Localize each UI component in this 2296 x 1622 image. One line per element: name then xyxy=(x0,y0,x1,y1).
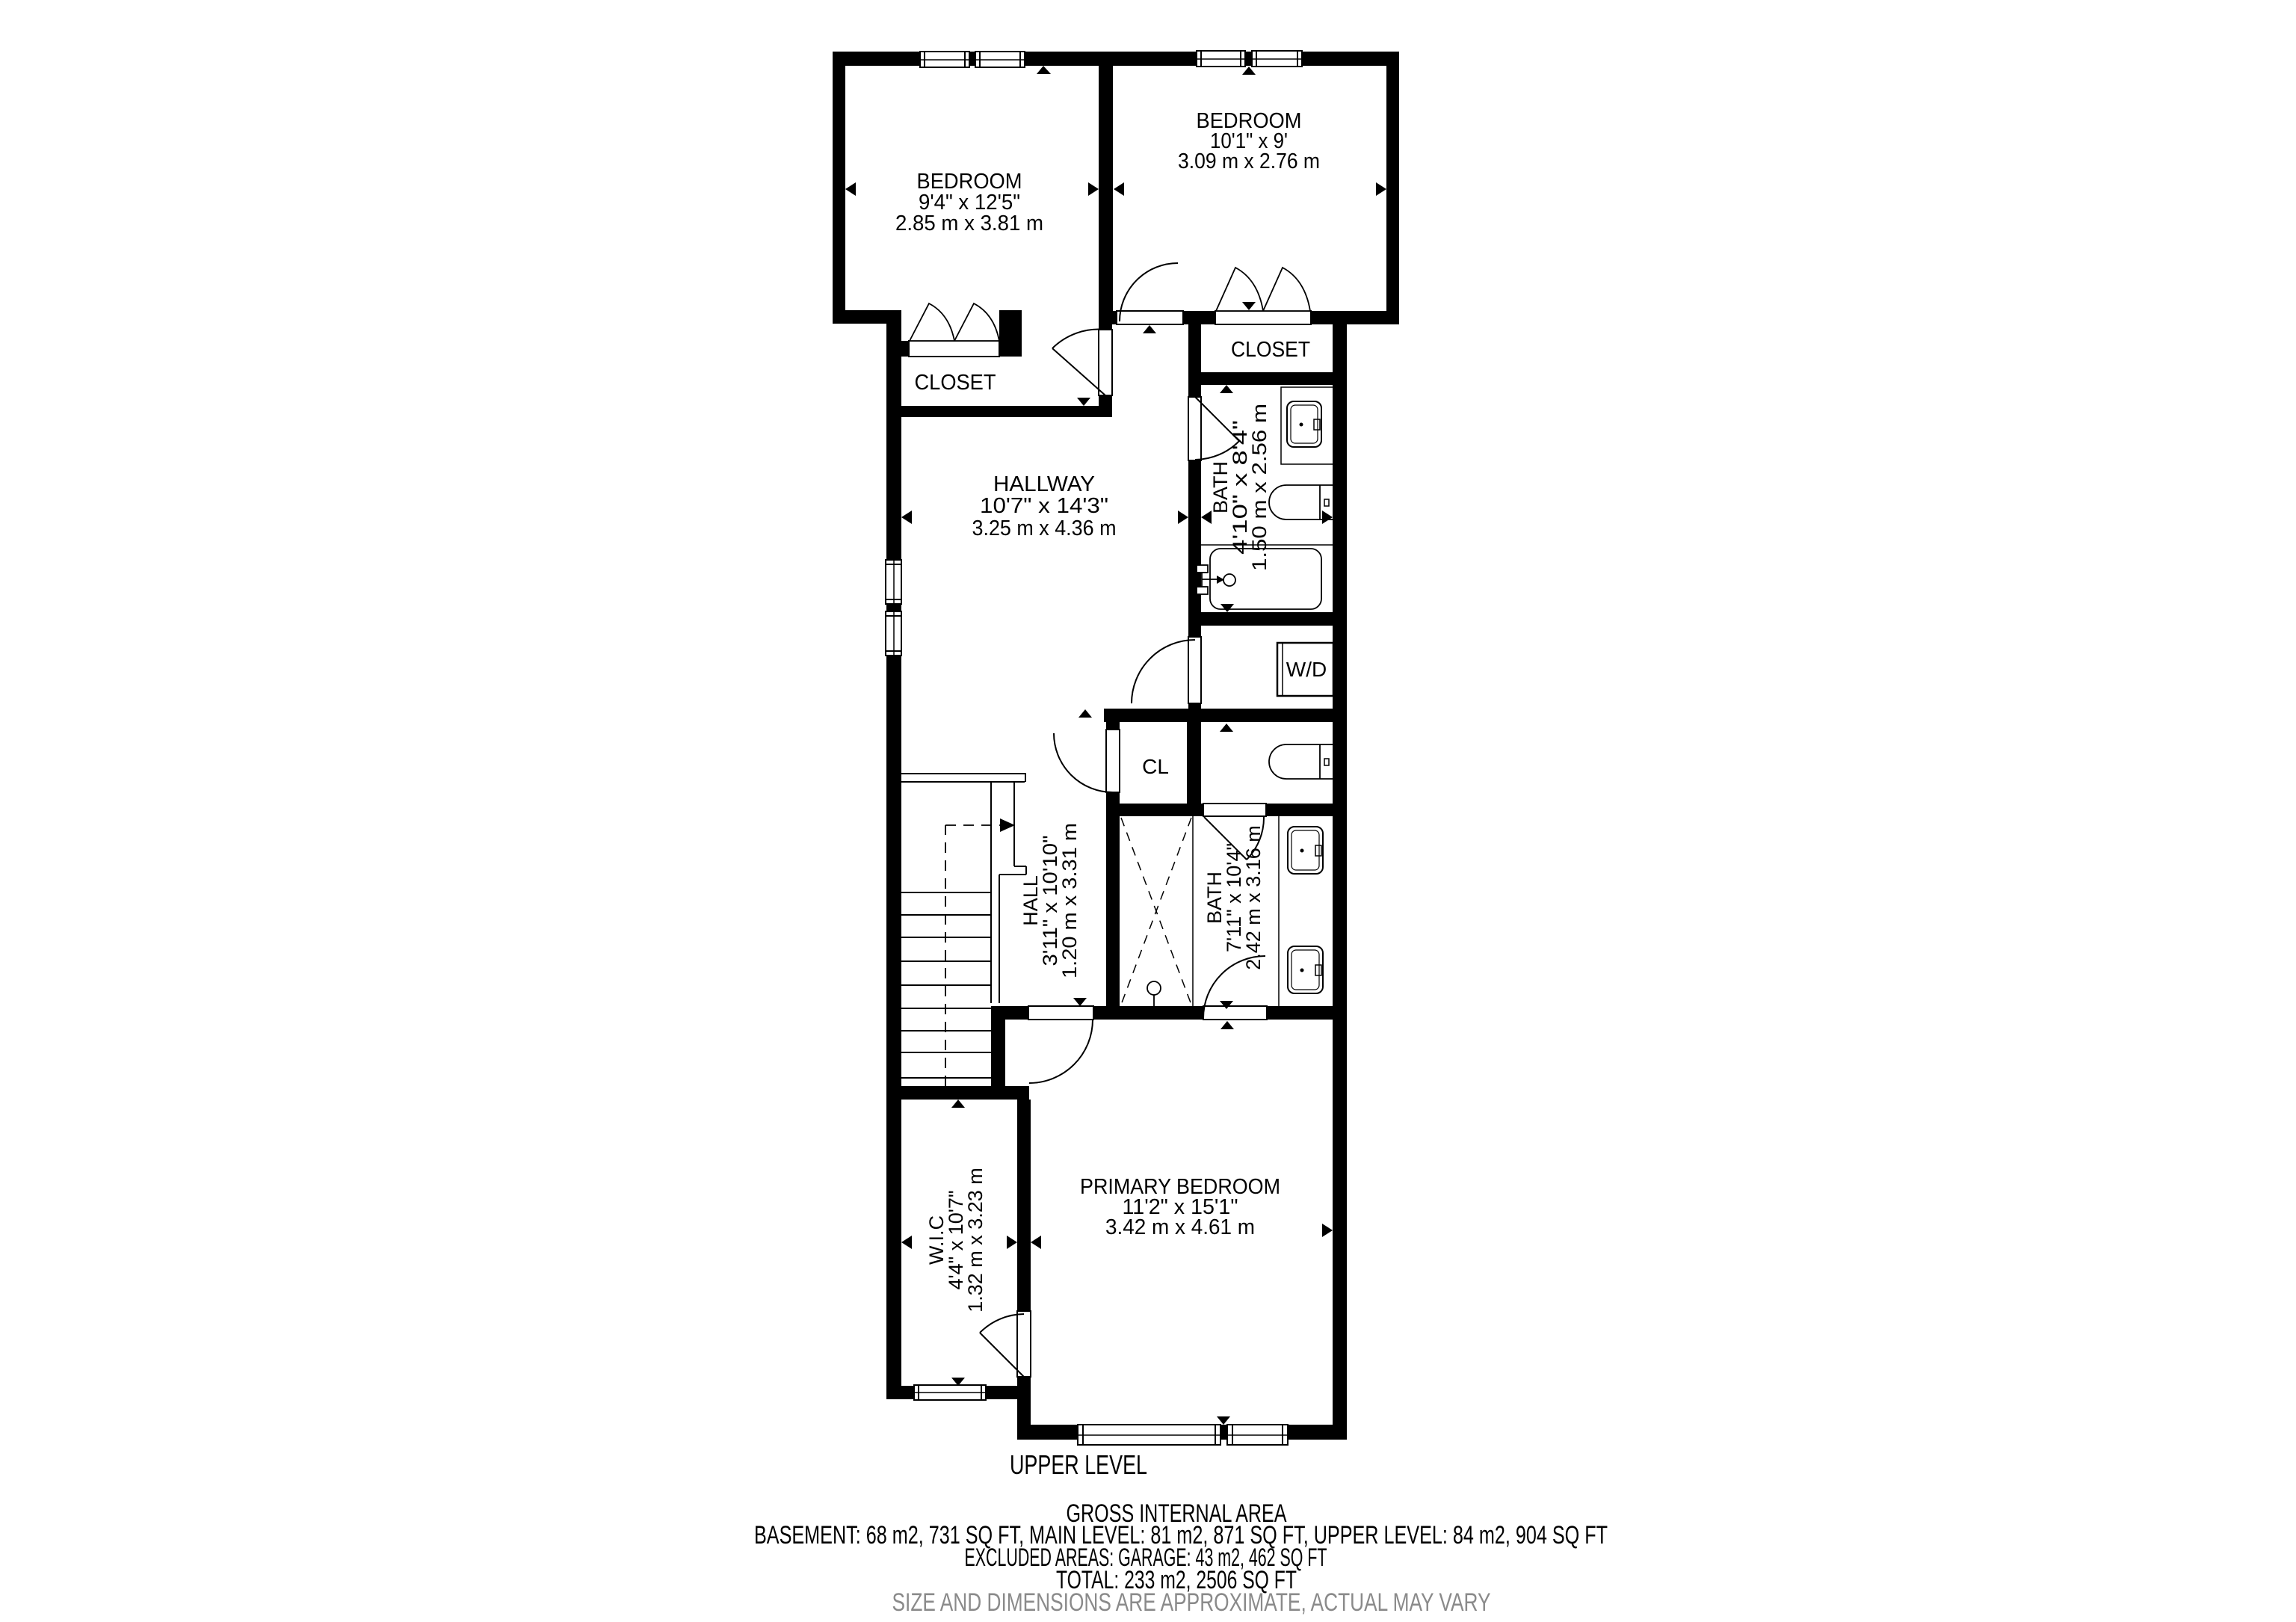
svg-text:2.42 m x 3.16 m: 2.42 m x 3.16 m xyxy=(1242,825,1265,970)
svg-text:CLOSET: CLOSET xyxy=(1231,338,1310,362)
svg-text:CL: CL xyxy=(1142,755,1169,778)
svg-text:UPPER LEVEL: UPPER LEVEL xyxy=(1010,1449,1147,1480)
svg-text:3.42 m x 4.61 m: 3.42 m x 4.61 m xyxy=(1105,1215,1255,1239)
svg-text:10'7" x 14'3": 10'7" x 14'3" xyxy=(980,494,1108,518)
svg-text:W/D: W/D xyxy=(1286,658,1327,681)
svg-text:3.25 m x 4.36 m: 3.25 m x 4.36 m xyxy=(972,516,1117,540)
svg-text:1.32 m x 3.23 m: 1.32 m x 3.23 m xyxy=(964,1168,987,1313)
svg-text:SIZE AND DIMENSIONS ARE APPROX: SIZE AND DIMENSIONS ARE APPROXIMATE, ACT… xyxy=(892,1588,1491,1617)
svg-text:1.50 m x 2.56 m: 1.50 m x 2.56 m xyxy=(1248,404,1271,571)
svg-text:3.09 m x 2.76 m: 3.09 m x 2.76 m xyxy=(1178,149,1320,173)
svg-text:1.20 m x 3.31 m: 1.20 m x 3.31 m xyxy=(1058,823,1081,978)
svg-text:HALLWAY: HALLWAY xyxy=(993,472,1095,496)
svg-text:2.85 m x 3.81 m: 2.85 m x 3.81 m xyxy=(895,212,1043,235)
svg-text:CLOSET: CLOSET xyxy=(915,371,996,395)
